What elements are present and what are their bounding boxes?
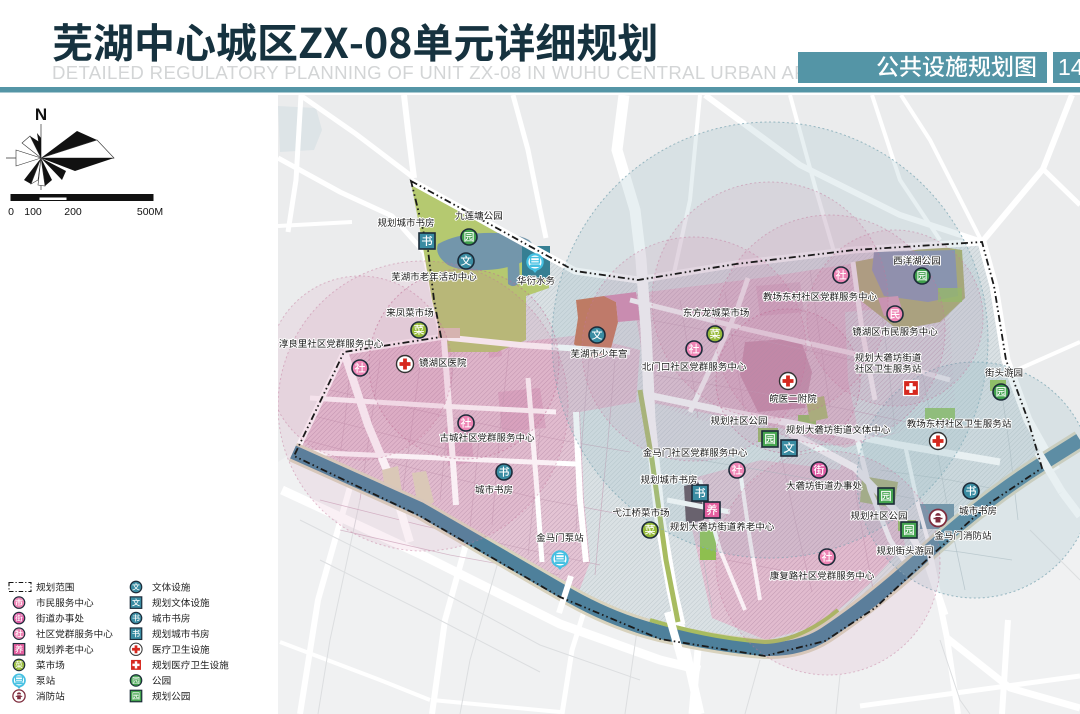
svg-text:DETAILED REGULATORY PLANNING O: DETAILED REGULATORY PLANNING OF UNIT ZX-… xyxy=(52,62,834,83)
svg-text:500M: 500M xyxy=(137,206,163,218)
svg-text:14: 14 xyxy=(1058,54,1080,80)
svg-text:N: N xyxy=(35,105,47,124)
svg-text:200: 200 xyxy=(64,206,82,218)
svg-text:100: 100 xyxy=(24,206,42,218)
svg-text:0: 0 xyxy=(8,206,14,218)
